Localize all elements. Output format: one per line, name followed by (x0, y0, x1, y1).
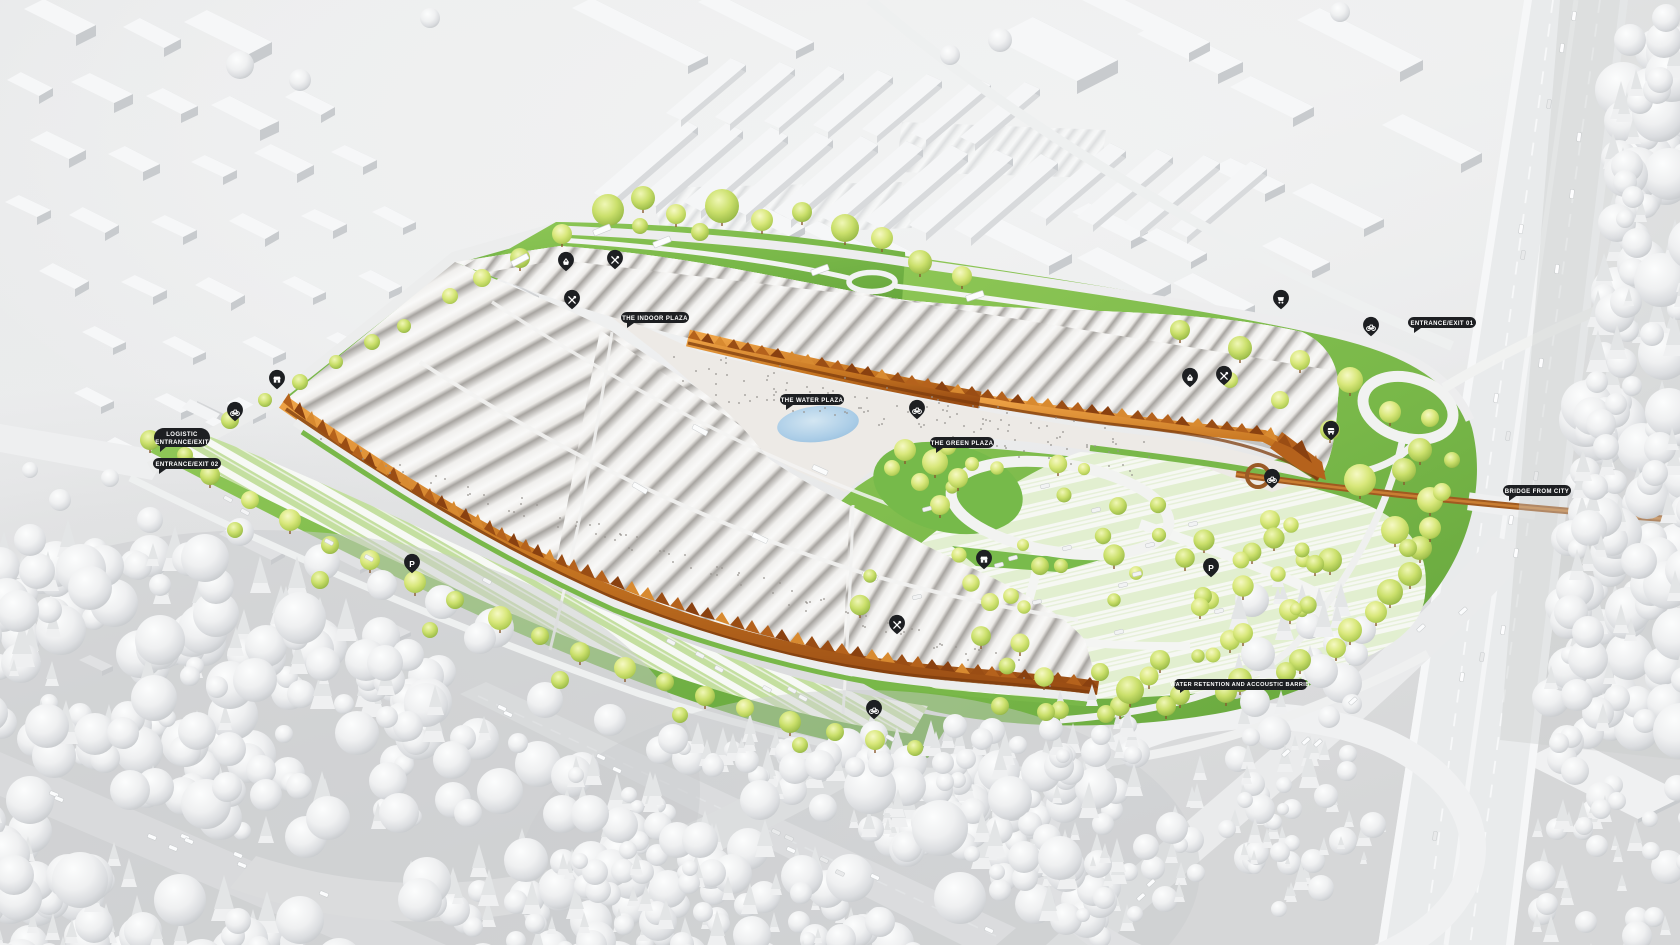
svg-text:P: P (1208, 563, 1214, 573)
svg-text:ENTRANCE/EXIT: ENTRANCE/EXIT (155, 440, 209, 446)
svg-text:ENTRANCE/EXIT 01: ENTRANCE/EXIT 01 (1410, 321, 1473, 327)
svg-text:ENTRANCE/EXIT 02: ENTRANCE/EXIT 02 (155, 462, 218, 468)
svg-text:LOGISTIC: LOGISTIC (166, 432, 198, 438)
svg-text:BRIDGE FROM CITY: BRIDGE FROM CITY (1505, 489, 1569, 495)
svg-text:THE INDOOR PLAZA: THE INDOOR PLAZA (622, 316, 688, 322)
svg-text:THE WATER PLAZA: THE WATER PLAZA (781, 398, 844, 404)
svg-text:WATER RETENTION AND ACCOUSTIC: WATER RETENTION AND ACCOUSTIC BARRIB (1170, 682, 1309, 688)
svg-text:P: P (409, 559, 415, 569)
svg-text:THE GREEN PLAZA: THE GREEN PLAZA (931, 441, 994, 447)
